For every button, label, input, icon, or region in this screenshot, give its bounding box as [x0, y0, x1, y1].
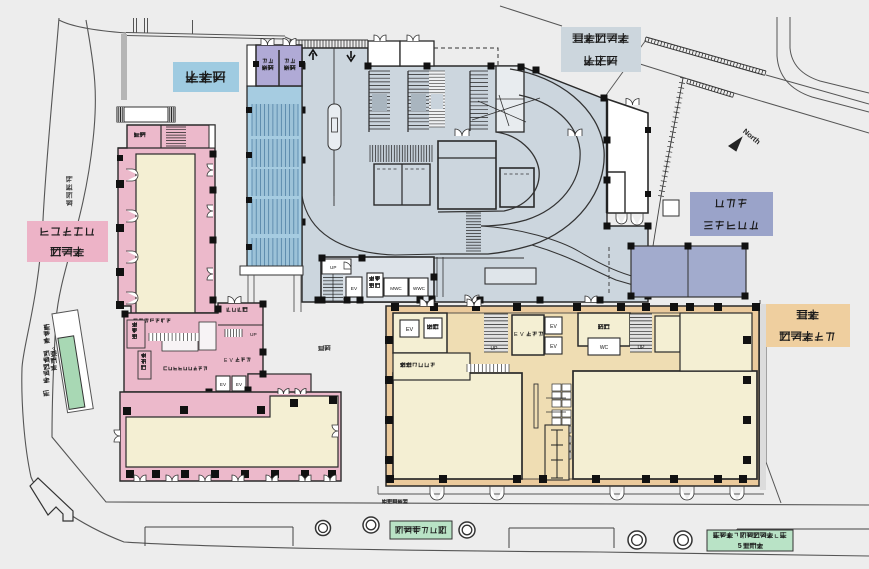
svg-text:MWC: MWC	[390, 286, 402, 291]
svg-text:UP: UP	[250, 332, 257, 338]
svg-text:EV: EV	[220, 382, 227, 387]
svg-text:EV: EV	[550, 324, 557, 330]
svg-text:WWC: WWC	[413, 286, 426, 291]
svg-text:EV: EV	[351, 286, 358, 292]
svg-text:UP: UP	[638, 345, 646, 351]
svg-text:EV: EV	[406, 327, 414, 333]
svg-text:EV: EV	[550, 344, 557, 350]
svg-text:UP: UP	[330, 265, 336, 270]
svg-text:5: 5	[738, 542, 742, 550]
svg-text:WC: WC	[600, 345, 609, 351]
svg-text:EV: EV	[236, 382, 243, 387]
svg-text:E: E	[514, 332, 518, 338]
svg-text:UP: UP	[491, 346, 499, 352]
svg-text:V: V	[520, 332, 524, 338]
